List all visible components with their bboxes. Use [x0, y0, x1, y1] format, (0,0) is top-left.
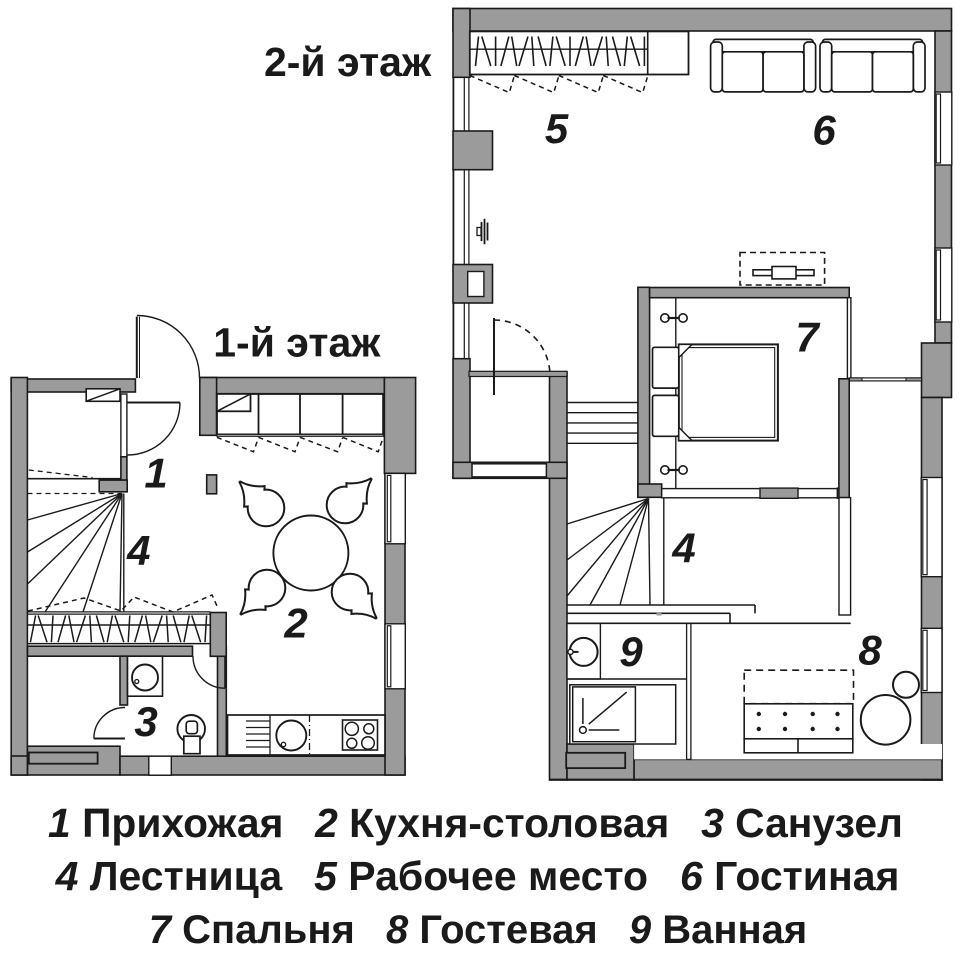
svg-text:1-й этаж: 1-й этаж	[213, 320, 381, 366]
svg-text:7: 7	[795, 314, 820, 361]
svg-text:6: 6	[812, 106, 836, 153]
svg-text:4: 4	[671, 525, 695, 572]
svg-text:1 Прихожая 2 Кухня-столовая: 1 Прихожая 2 Кухня-столовая 3 Санузел	[48, 800, 903, 846]
svg-text:4 Лестница 5 Рабочее место 6: 4 Лестница 5 Рабочее место 6 Гостиная	[55, 853, 900, 899]
svg-text:7 Спальня 8 Гостевая 9 Ванна: 7 Спальня 8 Гостевая 9 Ванная	[149, 908, 808, 952]
svg-text:2-й этаж: 2-й этаж	[264, 39, 432, 85]
svg-text:4: 4	[126, 527, 150, 574]
svg-text:8: 8	[858, 626, 882, 673]
svg-text:5: 5	[545, 105, 569, 152]
svg-text:3: 3	[134, 698, 157, 745]
svg-text:2: 2	[283, 600, 307, 647]
svg-text:9: 9	[619, 628, 643, 675]
svg-text:1: 1	[144, 450, 167, 497]
